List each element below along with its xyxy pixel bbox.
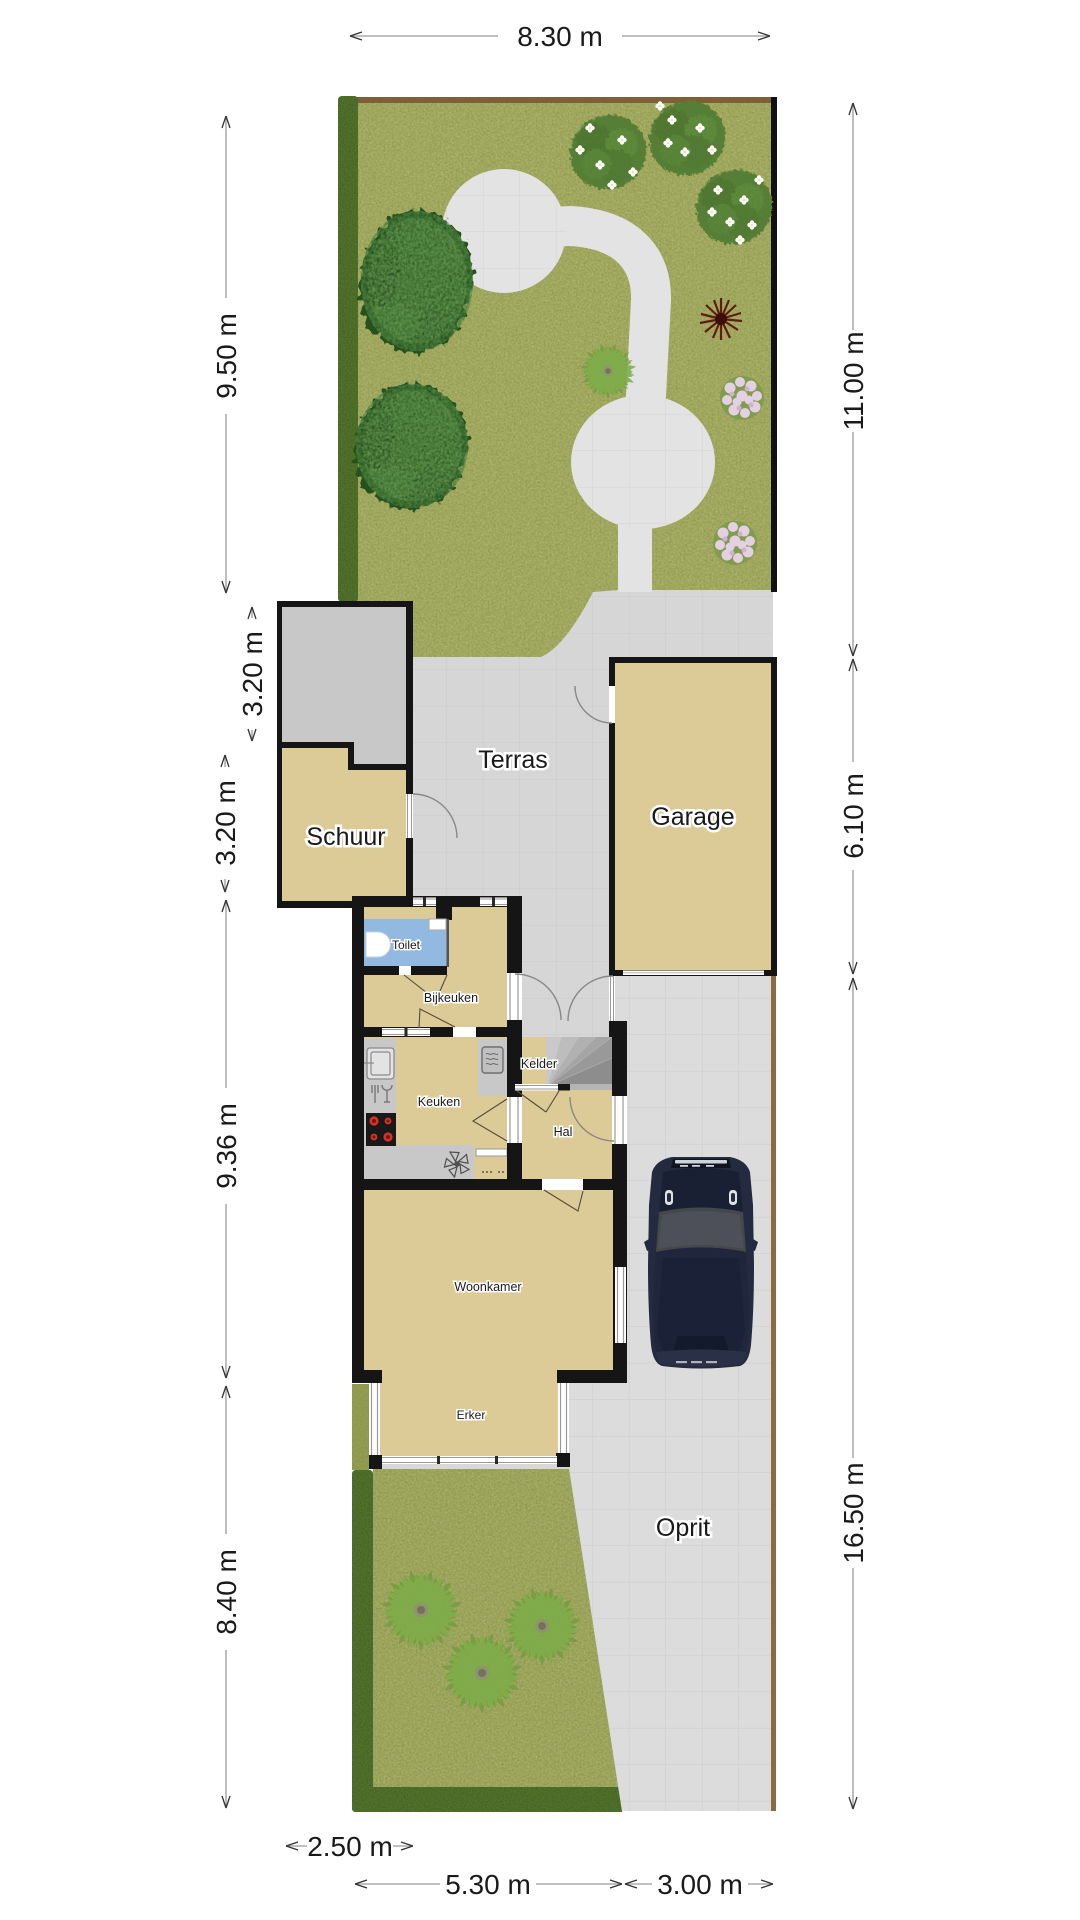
svg-text:Bijkeuken: Bijkeuken: [424, 991, 478, 1005]
svg-text:3.20 m: 3.20 m: [210, 780, 241, 866]
svg-text:Toilet: Toilet: [392, 938, 421, 952]
svg-text:Oprit: Oprit: [656, 1514, 710, 1542]
svg-text:Kelder: Kelder: [521, 1057, 557, 1071]
svg-text:6.10 m: 6.10 m: [838, 773, 869, 859]
svg-text:Schuur: Schuur: [306, 823, 385, 851]
svg-text:16.50 m: 16.50 m: [838, 1462, 869, 1563]
svg-text:9.36 m: 9.36 m: [211, 1103, 242, 1189]
svg-text:Erker: Erker: [457, 1408, 486, 1422]
svg-text:8.40 m: 8.40 m: [211, 1549, 242, 1635]
svg-text:Woonkamer: Woonkamer: [454, 1280, 521, 1294]
svg-text:Terras: Terras: [478, 746, 547, 774]
svg-text:5.30 m: 5.30 m: [445, 1869, 531, 1900]
svg-text:Keuken: Keuken: [418, 1095, 460, 1109]
svg-text:8.30 m: 8.30 m: [517, 21, 603, 52]
svg-text:Hal: Hal: [554, 1125, 573, 1139]
svg-text:2.50 m: 2.50 m: [307, 1831, 393, 1862]
svg-text:11.00 m: 11.00 m: [838, 331, 869, 430]
svg-text:Garage: Garage: [651, 803, 734, 831]
svg-text:3.20 m: 3.20 m: [237, 631, 268, 717]
svg-text:3.00 m: 3.00 m: [657, 1869, 743, 1900]
svg-text:9.50 m: 9.50 m: [211, 313, 242, 399]
